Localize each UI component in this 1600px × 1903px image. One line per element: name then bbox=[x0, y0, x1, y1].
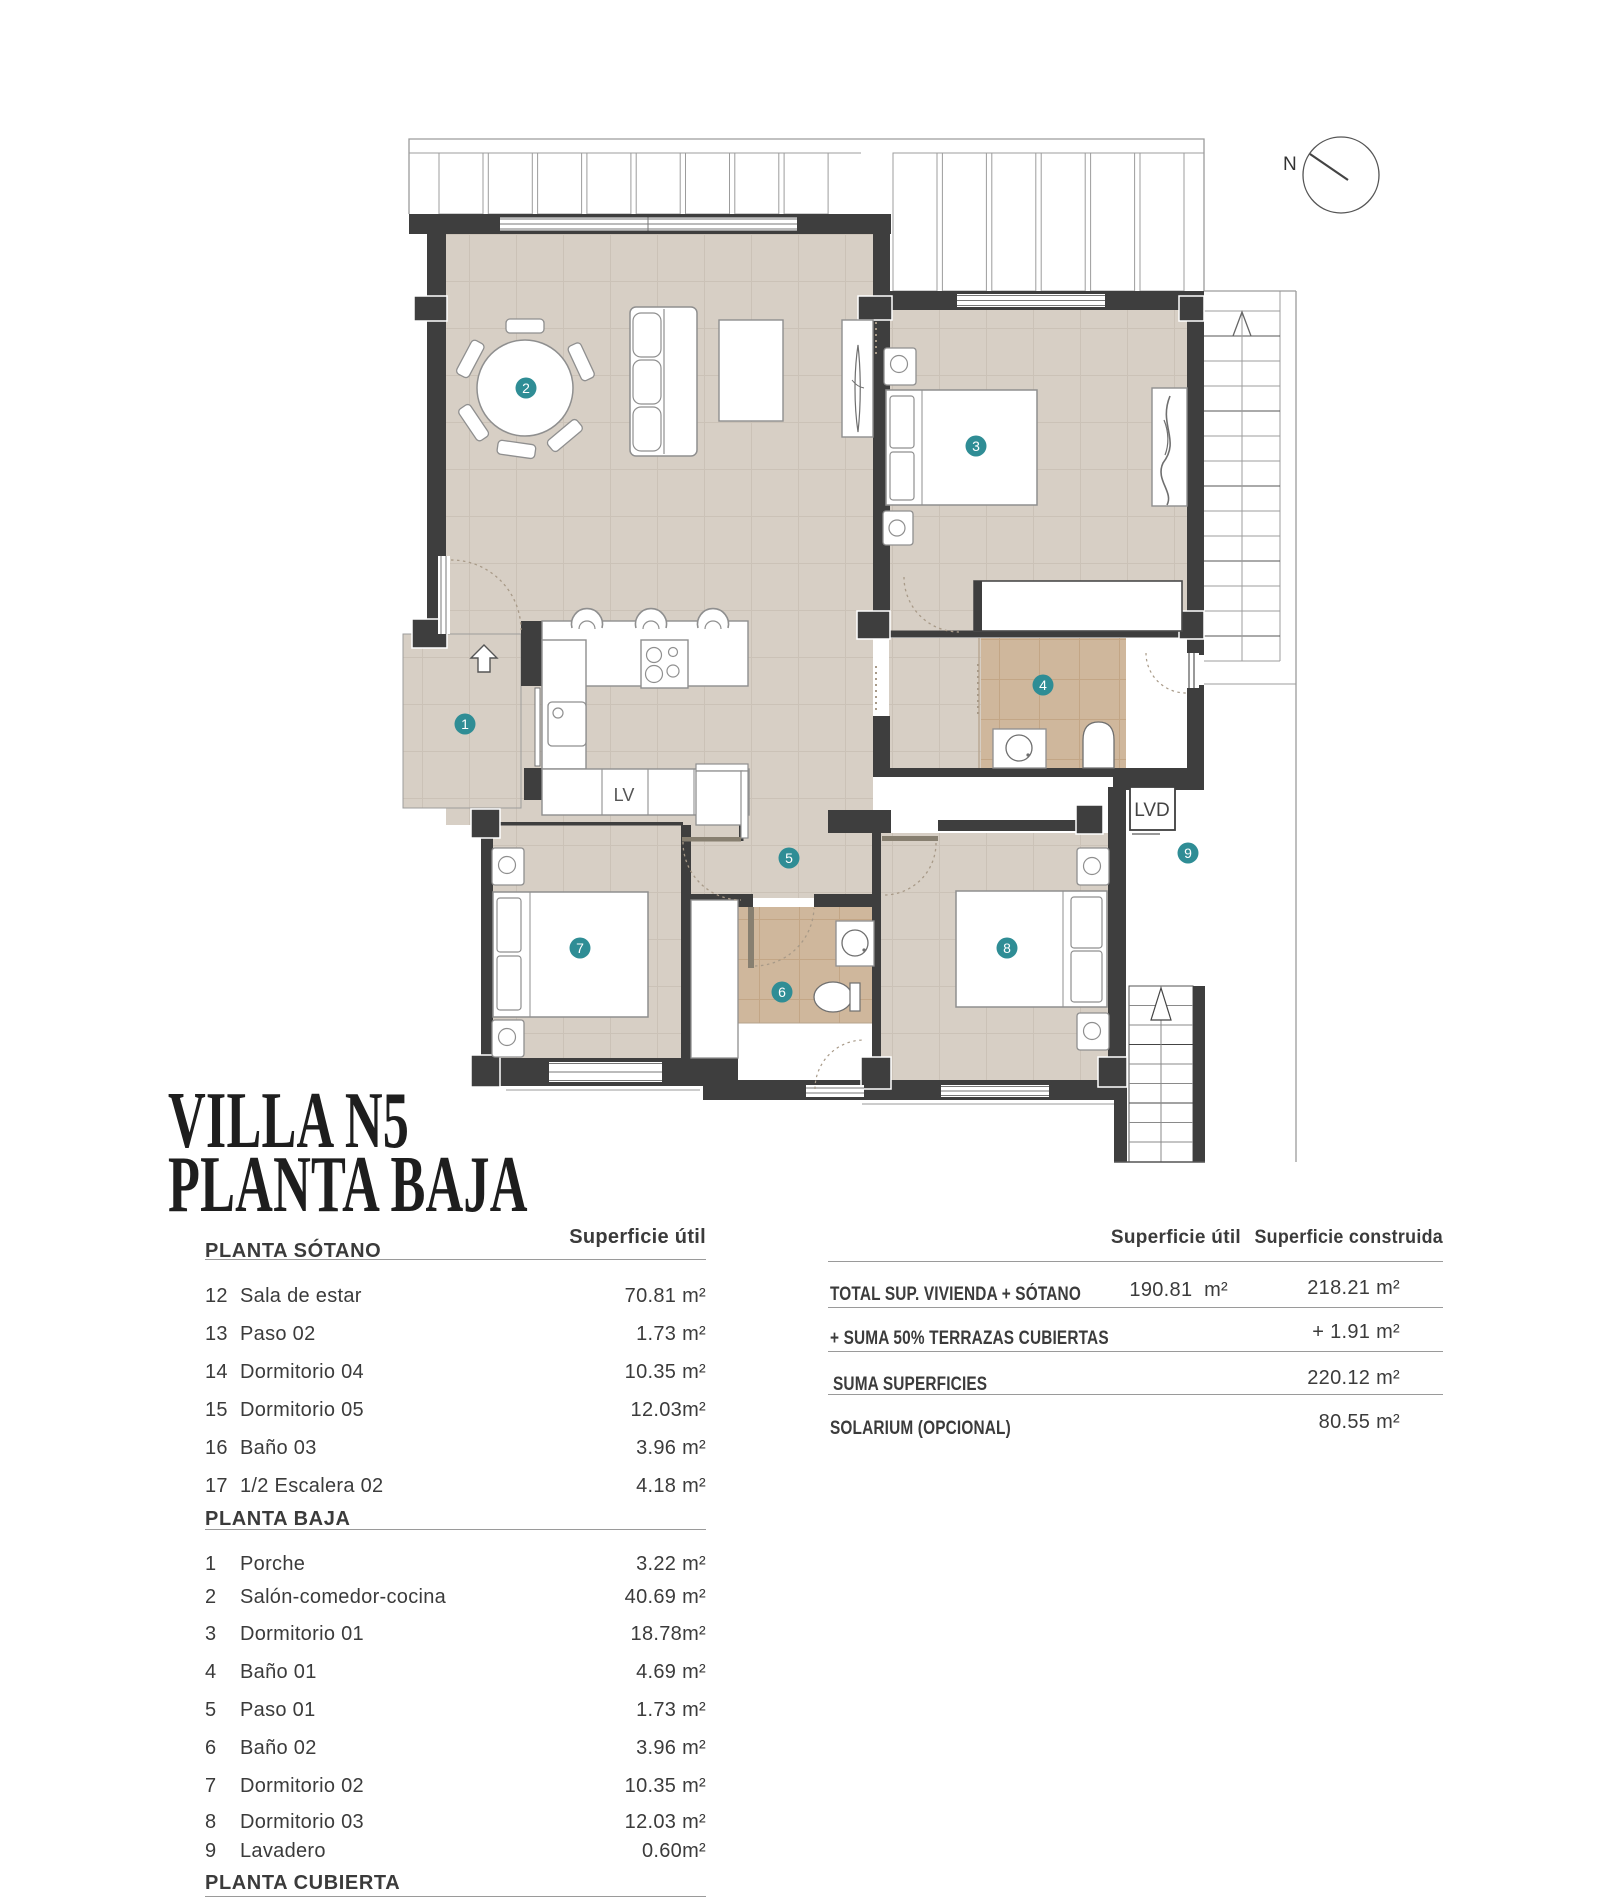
svg-text:1: 1 bbox=[461, 716, 469, 732]
svg-text:9: 9 bbox=[1184, 845, 1192, 861]
svg-text:2: 2 bbox=[522, 380, 530, 396]
svg-text:LVD: LVD bbox=[1134, 800, 1170, 821]
svg-text:6: 6 bbox=[778, 984, 786, 1000]
svg-text:3: 3 bbox=[972, 438, 980, 454]
svg-text:5: 5 bbox=[785, 850, 793, 866]
svg-text:N: N bbox=[1283, 154, 1297, 175]
svg-text:7: 7 bbox=[576, 940, 584, 956]
svg-text:8: 8 bbox=[1003, 940, 1011, 956]
svg-text:LV: LV bbox=[614, 785, 635, 805]
svg-text:4: 4 bbox=[1039, 677, 1047, 693]
